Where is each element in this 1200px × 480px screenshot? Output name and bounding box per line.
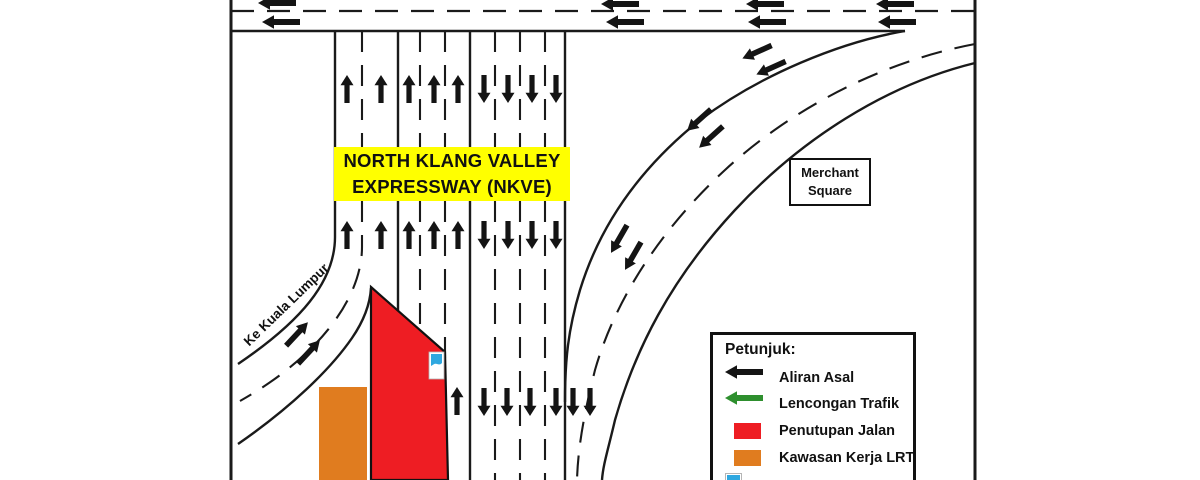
black-arrow-left-icon [725, 365, 769, 391]
legend-box: Petunjuk: Aliran Asal Lencongan Trafik P… [710, 332, 916, 480]
orange-swatch-icon [725, 445, 769, 471]
blue-flag-icon [725, 473, 769, 480]
expressway-name-line1: NORTH KLANG VALLEY [343, 148, 560, 174]
road-closure-area [371, 287, 448, 480]
merchant-square-label: Merchant Square [789, 158, 871, 206]
top-road [231, 11, 975, 31]
legend-item-kawasan-kerja-lrt3: Kawasan Kerja LRT3 [713, 445, 913, 471]
expressway-name-label: NORTH KLANG VALLEY EXPRESSWAY (NKVE) [334, 147, 570, 201]
legend-item-penutupan-jalan: Penutupan Jalan [713, 418, 913, 444]
top-road-arrows [258, 0, 916, 29]
legend-item-aliran-asal: Aliran Asal [713, 365, 913, 391]
traffic-diversion-map: NORTH KLANG VALLEY EXPRESSWAY (NKVE) Mer… [0, 0, 1200, 480]
legend-item-partial [713, 473, 913, 480]
legend-item-lencongan-trafik: Lencongan Trafik [713, 391, 913, 417]
road-diagram [0, 0, 1200, 480]
lrt3-work-zone [319, 387, 367, 480]
green-arrow-left-icon [725, 391, 769, 417]
legend-title: Petunjuk: [725, 341, 796, 359]
blue-flag-icon [429, 352, 444, 379]
ramp-arrows [606, 40, 789, 273]
red-swatch-icon [725, 418, 769, 444]
expressway-name-line2: EXPRESSWAY (NKVE) [352, 174, 552, 200]
